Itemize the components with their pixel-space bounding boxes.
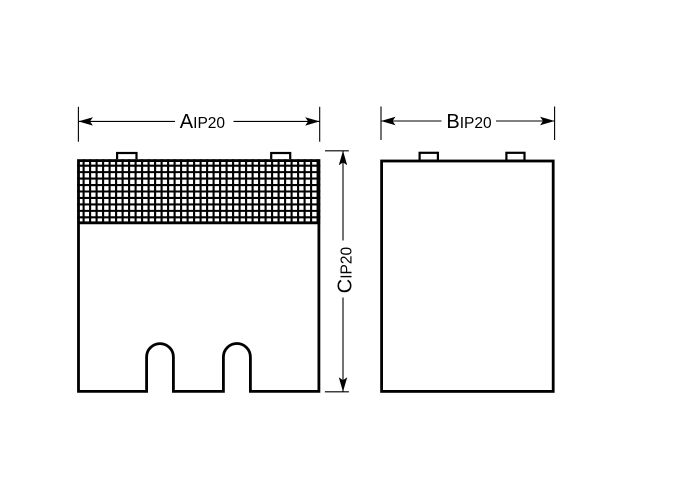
svg-text:AIP20: AIP20 [180,111,226,133]
svg-text:CIP20: CIP20 [335,246,357,293]
svg-text:BIP20: BIP20 [446,111,492,133]
